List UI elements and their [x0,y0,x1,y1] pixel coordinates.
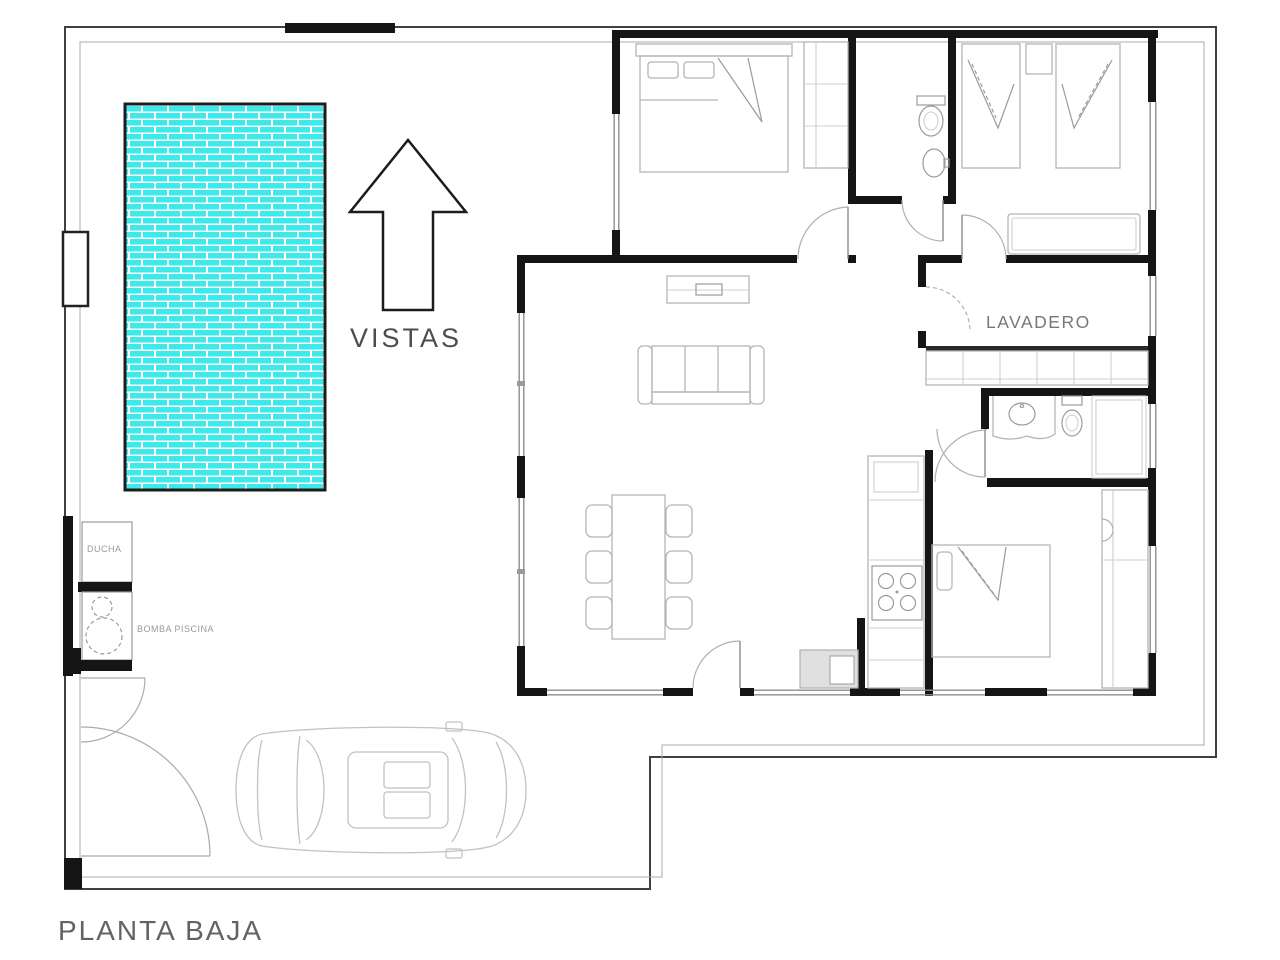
dining-chair [666,551,692,583]
dining-chair [666,505,692,537]
toilet-tank [917,96,945,105]
bath2-fixtures [993,396,1146,478]
dining-chair [586,505,612,537]
bed3-blanket-fold [958,547,1006,600]
kitchen-sink [874,462,918,492]
car-body [236,727,526,853]
shower-label: DUCHA [87,544,122,554]
car-hood-line [496,742,507,838]
twin-bed-left-fold [968,60,1014,128]
pool-pump-label: BOMBA PISCINA [137,624,214,634]
bed3-pillow [937,552,952,590]
toilet-tank [1062,396,1082,405]
wardrobe-door-arc [1102,519,1113,541]
vanity-counter [993,396,1055,439]
pump-small-circle [92,597,112,617]
entrance-gates [81,678,210,856]
pedestrian-gate-arc [81,678,145,742]
sofa-seat [652,346,750,392]
pump-box [82,592,132,660]
bed3-double-bed [932,545,1050,657]
bed1-pillow [684,62,714,78]
bed1-pillow [648,62,678,78]
bedroom3-furniture [932,490,1148,688]
dining-chair [586,597,612,629]
sink-icon [923,149,945,177]
bedroom1-door-arc [798,207,848,259]
floor-plan-drawing: DUCHA BOMBA PISCINA VISTAS [0,0,1280,960]
car-roof [348,752,448,828]
swimming-pool [125,104,325,490]
bedroom3-door-arc [935,430,987,482]
shower-tray [1092,396,1146,478]
dining-chair [666,597,692,629]
north-arrow-icon [350,140,466,310]
bedroom1-furniture [636,42,848,172]
corner-post [64,858,82,889]
twin-bed-left [962,44,1020,168]
burner [901,596,916,611]
car-top-view [236,722,526,858]
dining-chair [586,551,612,583]
floor-title: PLANTA BAJA [58,915,263,946]
burner [879,574,894,589]
bed1-headboard [636,44,792,56]
bath1-door-arc [902,200,943,241]
nightstand [1026,44,1052,74]
bedroom2-door-arc [962,215,1006,259]
dining-table [612,495,665,639]
appliance-detail [830,656,854,684]
low-cabinet [1008,214,1140,254]
vehicle-gate-arc [81,727,210,856]
fence-side-gate [63,232,88,306]
pool-water [125,104,325,490]
windows [517,102,1156,695]
burner [901,574,916,589]
pump-large-circle [86,618,122,654]
car-rear-window [306,740,324,840]
bedroom3-wardrobe [1102,490,1148,688]
toilet-icon [919,106,943,136]
living-dining-furniture [586,276,764,639]
burner [879,596,894,611]
fence-top-gate-segment [285,23,395,33]
sofa-armrest [638,346,652,404]
sink-icon [1009,403,1035,425]
views-arrow: VISTAS [350,140,466,353]
laundry-label: LAVADERO [986,312,1091,332]
bed1-blanket-fold [718,58,762,122]
floor-plan-page: DUCHA BOMBA PISCINA VISTAS [0,0,1280,960]
entrance-door-arc [693,641,740,688]
toilet-icon [1062,410,1082,436]
bedroom1-wardrobe [804,42,848,168]
shower-and-pump: DUCHA BOMBA PISCINA [78,522,214,671]
car-windshield [452,738,466,842]
views-label: VISTAS [350,323,462,353]
doors [693,200,1006,688]
sofa-back [652,392,750,404]
kitchen-counter [868,456,924,688]
bedroom2-furniture [962,44,1140,254]
bath1-fixtures [917,96,949,177]
sofa-armrest [750,346,764,404]
laundry-door-arc [926,287,970,331]
